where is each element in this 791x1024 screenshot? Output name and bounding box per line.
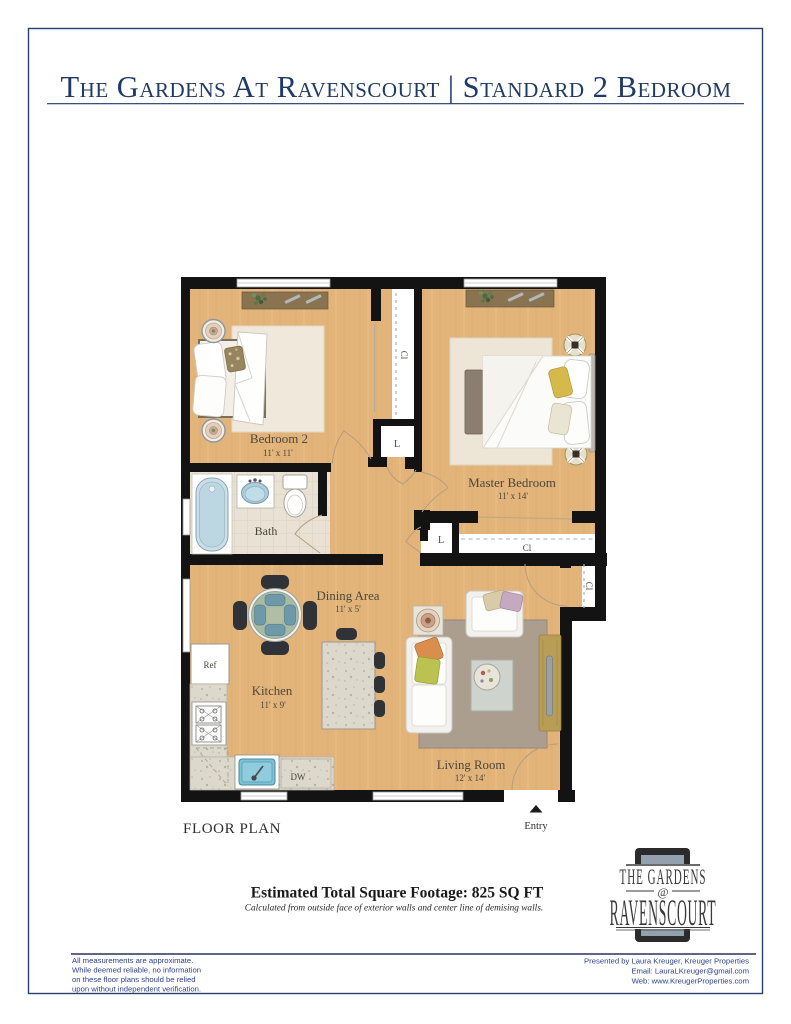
svg-text:11' x 5': 11' x 5' (335, 604, 361, 614)
svg-text:RAVENSCOURT: RAVENSCOURT (610, 893, 717, 934)
svg-text:The Gardens At Ravenscourt | S: The Gardens At Ravenscourt | Standard 2 … (61, 70, 732, 104)
svg-text:L: L (394, 439, 400, 450)
svg-text:DW: DW (291, 772, 306, 782)
svg-text:11' x 14': 11' x 14' (498, 491, 528, 501)
svg-text:Master Bedroom: Master Bedroom (468, 475, 556, 490)
svg-text:Estimated Total Square Footage: Estimated Total Square Footage: 825 SQ F… (251, 885, 544, 902)
svg-text:Entry: Entry (524, 821, 548, 832)
svg-text:Cl: Cl (584, 582, 594, 591)
svg-text:Dining Area: Dining Area (317, 589, 380, 603)
svg-text:FLOOR PLAN: FLOOR PLAN (183, 821, 281, 837)
svg-text:All measurements are approxima: All measurements are approximate. (72, 956, 193, 965)
svg-text:Bedroom 2: Bedroom 2 (250, 431, 308, 446)
svg-text:While deemed reliable, no info: While deemed reliable, no information (72, 966, 201, 975)
svg-text:Cl: Cl (523, 543, 532, 553)
svg-text:Ref: Ref (204, 660, 217, 670)
svg-text:Calculated from outside face o: Calculated from outside face of exterior… (245, 903, 543, 914)
svg-text:Email: LauraLKreuger@gmail.com: Email: LauraLKreuger@gmail.com (631, 967, 749, 976)
svg-text:Kitchen: Kitchen (252, 684, 293, 698)
svg-text:12' x 14': 12' x 14' (455, 773, 486, 783)
svg-text:Bath: Bath (255, 524, 278, 538)
svg-text:11' x 11': 11' x 11' (263, 448, 293, 458)
svg-text:upon without independent verif: upon without independent verification. (72, 985, 201, 994)
svg-text:on these floor plans should be: on these floor plans should be relied (72, 975, 196, 984)
svg-text:Presented by Laura Kreuger, Kr: Presented by Laura Kreuger, Kreuger Prop… (584, 957, 749, 966)
svg-text:11' x 9': 11' x 9' (260, 700, 286, 710)
svg-text:L: L (438, 535, 444, 546)
svg-text:Web: www.KreugerProperties.com: Web: www.KreugerProperties.com (632, 977, 749, 986)
svg-text:Living Room: Living Room (437, 758, 506, 772)
svg-text:Cl: Cl (399, 351, 409, 360)
